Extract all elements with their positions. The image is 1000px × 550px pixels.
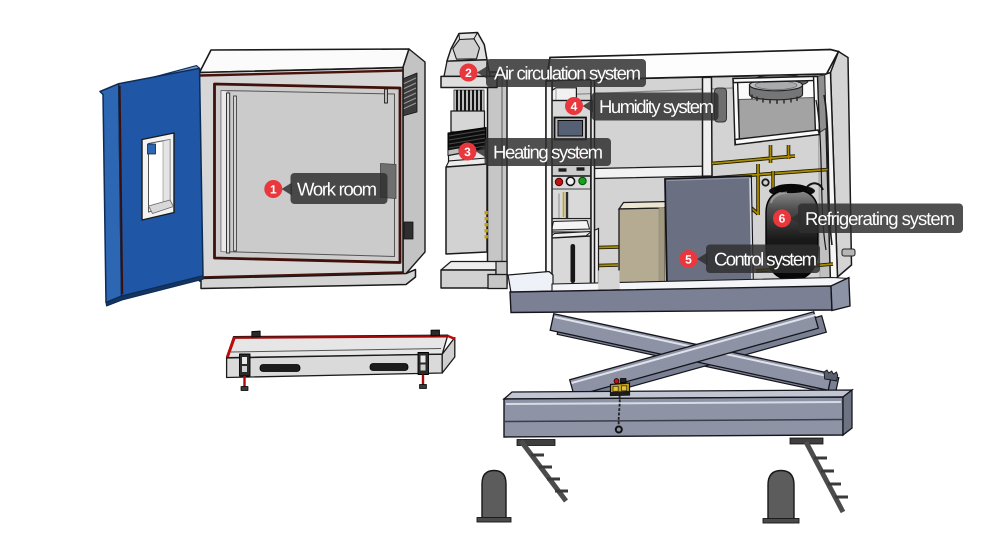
svg-text:Air circulation system: Air circulation system [494,63,641,84]
svg-text:Humidity system: Humidity system [599,96,714,117]
svg-text:5: 5 [685,252,692,266]
svg-text:Heating system: Heating system [493,142,603,163]
svg-text:Refrigerating system: Refrigerating system [805,208,955,229]
svg-text:6: 6 [779,212,786,226]
svg-text:Control system: Control system [714,249,817,270]
svg-text:1: 1 [270,182,277,196]
svg-text:3: 3 [464,145,471,159]
svg-text:2: 2 [465,66,472,80]
svg-text:4: 4 [571,99,578,113]
svg-text:Work room: Work room [297,179,377,200]
